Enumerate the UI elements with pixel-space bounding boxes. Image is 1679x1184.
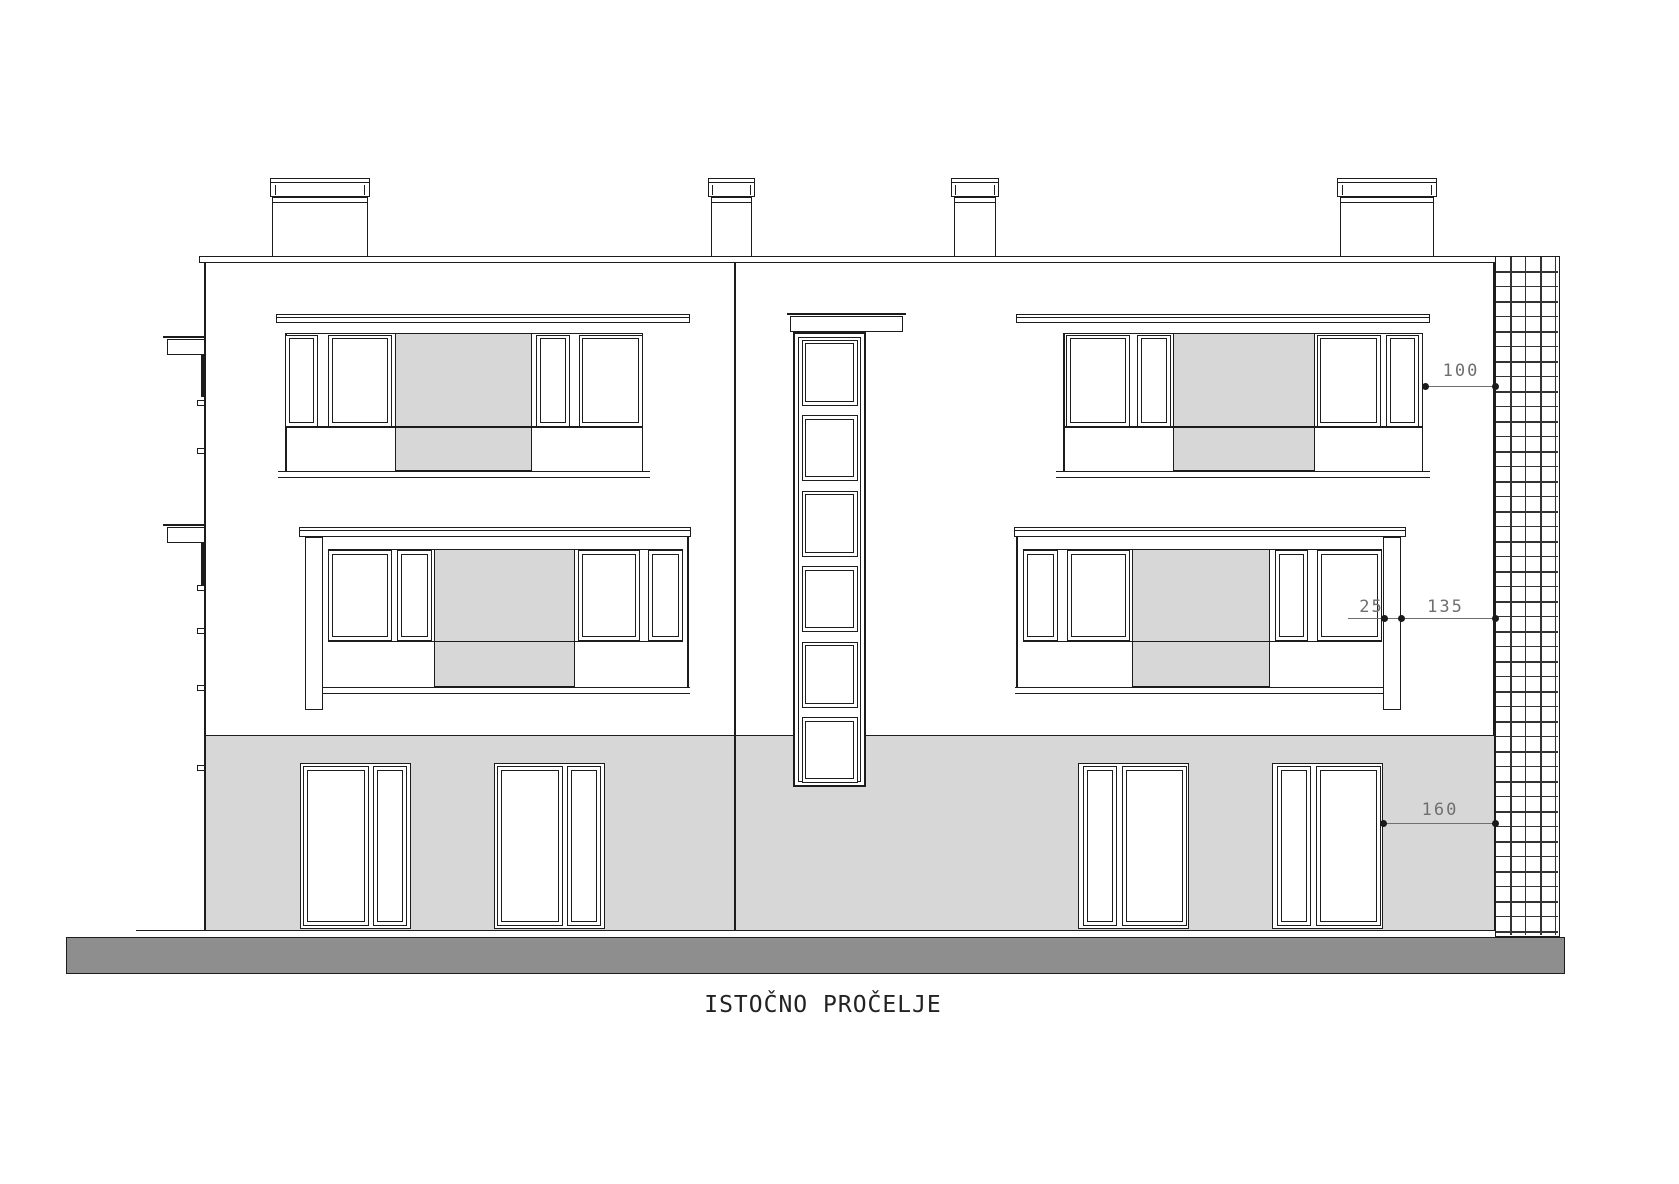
dimension-dot xyxy=(1492,615,1499,622)
wall-anchor-mark xyxy=(197,685,205,691)
lintel-upper-left xyxy=(276,314,690,323)
window-upper-right-3 xyxy=(1317,335,1381,427)
window-upper-right-1 xyxy=(1066,335,1130,427)
chimney-1-cap xyxy=(270,178,370,197)
side-balcony-rail-upper xyxy=(201,355,204,397)
door-leaf-wide xyxy=(497,766,563,926)
stair-canopy-lip xyxy=(787,313,906,315)
window-first-left-4 xyxy=(648,550,683,641)
chimney-4-cap xyxy=(1337,178,1437,197)
door-leaf-narrow xyxy=(567,766,601,926)
drawing-title: ISTOČNO PROČELJE xyxy=(704,992,942,1018)
recessed-panel-upper-left xyxy=(395,333,532,471)
chimney-cap-detail xyxy=(275,185,276,195)
dimension-dot xyxy=(1398,615,1405,622)
door-ground-left-1 xyxy=(300,763,411,929)
window-first-right-3 xyxy=(1275,550,1308,641)
dimension-label-25: 25 xyxy=(1359,597,1383,617)
side-balcony-rail-lower xyxy=(201,543,204,585)
roof-slab xyxy=(199,256,1496,263)
chimney-3-body xyxy=(954,203,996,257)
lintel-upper-right xyxy=(1016,314,1430,323)
balcony-slab-upper-left xyxy=(278,471,650,478)
chimney-cap-detail xyxy=(994,185,995,195)
dimension-label-100: 100 xyxy=(1443,361,1480,381)
dimension-label-135: 135 xyxy=(1427,597,1464,617)
stair-window-pane-6 xyxy=(802,717,859,783)
sill-line-first-right xyxy=(1023,641,1382,643)
balcony-slab-first-left xyxy=(323,687,690,694)
window-upper-left-4 xyxy=(579,335,644,427)
window-upper-right-2 xyxy=(1137,335,1171,427)
chimney-2-body xyxy=(711,203,752,257)
window-first-left-3 xyxy=(578,550,640,641)
window-upper-left-1 xyxy=(285,335,318,427)
wall-anchor-mark xyxy=(197,628,205,634)
balcony-side-edge-right-group xyxy=(1016,537,1018,687)
door-leaf-narrow xyxy=(1277,766,1311,926)
sill-line-upper-left xyxy=(285,426,643,428)
chimney-cap-detail xyxy=(364,185,365,195)
chimney-cap-detail xyxy=(1431,185,1432,195)
dimension-dot xyxy=(1380,820,1387,827)
chimney-2-cap xyxy=(708,178,755,197)
door-leaf-narrow xyxy=(373,766,407,926)
chimney-1-body xyxy=(272,203,368,257)
canopy-first-right xyxy=(1014,527,1406,537)
side-balcony-slab-lower xyxy=(167,527,205,544)
recessed-panel-upper-right xyxy=(1173,333,1315,471)
door-ground-right-1 xyxy=(1078,763,1189,929)
door-leaf-wide xyxy=(1316,766,1381,926)
window-first-right-4 xyxy=(1317,550,1382,641)
door-leaf-narrow xyxy=(1083,766,1117,926)
band-edge xyxy=(1063,333,1065,471)
chimney-cap-detail xyxy=(955,185,956,195)
dimension-line-160 xyxy=(1383,823,1495,824)
door-ground-right-2 xyxy=(1272,763,1383,929)
elevation-drawing-sheet: 100 25 135 160 ISTOČNO PROČELJE xyxy=(0,0,1679,1184)
balcony-slab-upper-right xyxy=(1056,471,1430,478)
window-upper-left-2 xyxy=(328,335,392,427)
chimney-cap-detail xyxy=(1342,185,1343,195)
balcony-post-right xyxy=(1383,537,1401,710)
wall-anchor-mark xyxy=(197,448,205,454)
balcony-slab-first-right xyxy=(1015,687,1383,694)
stair-canopy xyxy=(790,316,903,332)
side-balcony-slab-lip xyxy=(163,336,205,338)
balcony-post-left xyxy=(305,537,323,710)
window-upper-left-3 xyxy=(536,335,570,427)
stair-window-pane-5 xyxy=(802,642,859,708)
stair-window-pane-3 xyxy=(802,491,859,557)
door-leaf-wide xyxy=(303,766,369,926)
stair-window-pane-2 xyxy=(802,415,859,481)
band-edge xyxy=(1422,333,1424,471)
party-wall-line xyxy=(734,263,736,931)
zigzag-hatch-pattern xyxy=(1496,257,1558,935)
window-first-left-2 xyxy=(397,550,432,641)
chimney-cap-detail xyxy=(712,185,713,195)
sill-line-upper-right xyxy=(1063,426,1423,428)
chimney-3-cap xyxy=(951,178,999,197)
sill-line-first-left xyxy=(328,641,683,643)
section-hatch-strip xyxy=(1495,256,1560,937)
stair-window-pane-4 xyxy=(802,566,859,632)
dimension-dot xyxy=(1422,383,1429,390)
recessed-panel-first-right xyxy=(1132,549,1270,687)
dimension-line-25-135 xyxy=(1348,618,1496,619)
chimney-cap-detail xyxy=(750,185,751,195)
window-upper-right-4 xyxy=(1386,335,1419,427)
wall-anchor-mark xyxy=(197,585,205,591)
wall-anchor-mark xyxy=(197,400,205,406)
window-first-left-1 xyxy=(328,550,392,641)
side-balcony-slab-lip xyxy=(163,524,205,526)
dimension-dot xyxy=(1492,820,1499,827)
dimension-label-160: 160 xyxy=(1422,800,1459,820)
balcony-side-edge-left-group xyxy=(687,537,689,687)
window-first-right-1 xyxy=(1023,550,1058,641)
dimension-dot xyxy=(1492,383,1499,390)
wall-anchor-mark xyxy=(197,765,205,771)
side-balcony-slab-upper xyxy=(167,339,205,356)
dimension-line-100 xyxy=(1425,386,1495,387)
chimney-4-body xyxy=(1340,203,1434,257)
ground-base-strip xyxy=(66,937,1565,974)
stair-window-pane-1 xyxy=(802,340,859,406)
door-leaf-wide xyxy=(1122,766,1187,926)
door-ground-left-2 xyxy=(494,763,605,929)
sidewalk-step-line xyxy=(136,930,206,932)
window-first-right-2 xyxy=(1067,550,1130,641)
recessed-panel-first-left xyxy=(434,549,575,687)
dimension-dot xyxy=(1381,615,1388,622)
canopy-first-left xyxy=(299,527,691,537)
